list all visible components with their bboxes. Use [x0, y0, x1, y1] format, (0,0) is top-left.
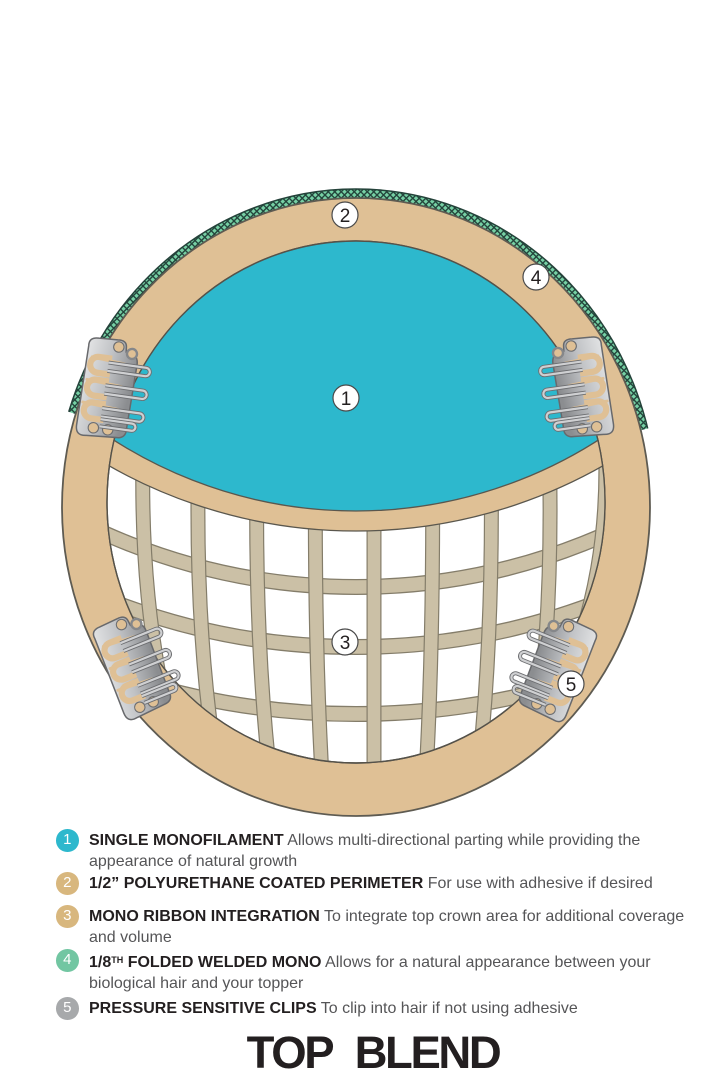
svg-text:3: 3: [340, 633, 351, 654]
svg-text:5: 5: [566, 675, 577, 696]
svg-text:4: 4: [531, 268, 542, 289]
svg-text:1: 1: [341, 389, 352, 410]
svg-text:2: 2: [340, 206, 351, 227]
